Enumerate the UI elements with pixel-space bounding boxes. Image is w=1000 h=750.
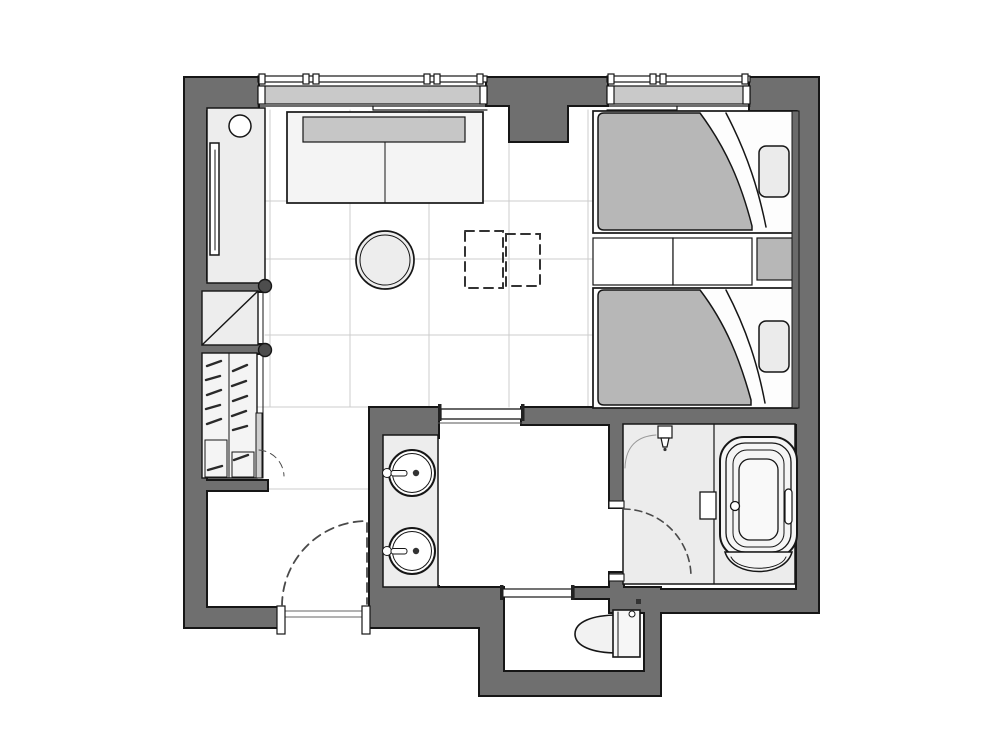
- wardrobe-sliding-panel: [256, 413, 262, 478]
- pivot-column-bottom: [259, 344, 272, 357]
- nightstand: [593, 238, 752, 285]
- toilet-tank: [613, 610, 640, 657]
- toilet-bowl: [575, 615, 618, 653]
- window-north-left: [258, 74, 487, 110]
- console-lamp: [229, 115, 251, 137]
- luggage-bench: [202, 291, 258, 345]
- twin-bed-top: [593, 111, 797, 233]
- double-sink-vanity: [383, 435, 439, 587]
- pillow: [759, 321, 789, 372]
- sofa-back-cushion: [303, 117, 465, 142]
- bathtub: [720, 437, 797, 572]
- pillow: [759, 146, 789, 197]
- bedside-shelf: [757, 238, 793, 280]
- sliding-door-powder: [438, 404, 525, 423]
- faucet-handle: [383, 547, 392, 556]
- drain: [413, 470, 419, 476]
- entry-door: [277, 521, 370, 634]
- pivot-column-top: [259, 280, 272, 293]
- floor-plan: [0, 0, 1000, 750]
- sliding-door-toilet: [500, 585, 575, 600]
- tub-handle: [785, 489, 792, 524]
- toilet: [575, 610, 640, 657]
- drain: [413, 548, 419, 554]
- faucet-spout: [391, 471, 407, 477]
- faucet-spout: [391, 549, 407, 555]
- tub-drain: [731, 502, 740, 511]
- twin-bed-bottom: [593, 288, 797, 408]
- round-side-table: [356, 231, 414, 289]
- flush-button: [629, 611, 635, 617]
- wardrobe: [202, 353, 284, 478]
- faucet-handle: [383, 469, 392, 478]
- sofa: [287, 112, 483, 203]
- bath-shelf: [700, 492, 716, 519]
- window-north-right: [607, 74, 750, 110]
- floor-plan-canvas: [0, 0, 1000, 750]
- wet-room: [609, 424, 797, 584]
- door-stop: [636, 599, 641, 604]
- headboard-panel: [792, 111, 799, 408]
- entry-door-swing: [282, 521, 367, 606]
- tv-console: [207, 108, 265, 283]
